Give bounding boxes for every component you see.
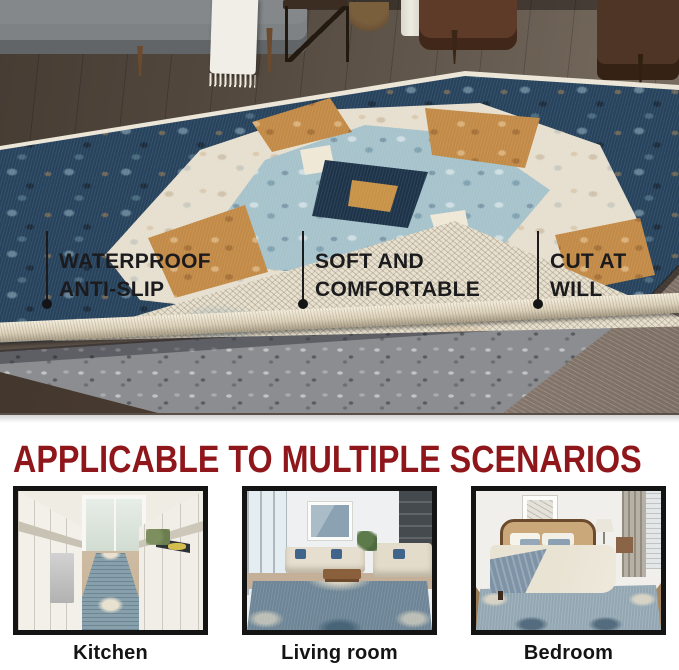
lamp-pole xyxy=(603,532,605,544)
gray-sofa xyxy=(0,0,307,54)
callout-label-line: SOFT AND xyxy=(315,248,480,276)
bed xyxy=(490,545,616,593)
callout-label: SOFT AND COMFORTABLE xyxy=(315,248,480,304)
kitchen-plant xyxy=(146,529,170,545)
kitchen-photo xyxy=(18,491,203,630)
scenario-label-bedroom: Bedroom xyxy=(471,642,666,665)
callout-line xyxy=(46,231,48,302)
throw-blanket xyxy=(210,0,259,75)
callout-label-line: ANTI-SLIP xyxy=(59,276,211,304)
leather-armchair xyxy=(419,0,517,50)
callout-label-line: WATERPROOF xyxy=(59,248,211,276)
side-table xyxy=(283,0,347,64)
scenario-label-kitchen: Kitchen xyxy=(13,642,208,665)
wall-art xyxy=(307,501,353,541)
callout-dot-marker xyxy=(42,299,52,309)
blue-pillow xyxy=(331,549,342,559)
throw-fringe xyxy=(209,73,255,88)
callout-label-line: COMFORTABLE xyxy=(315,276,480,304)
blue-pillow xyxy=(295,549,306,559)
kitchen-window xyxy=(82,495,146,559)
lamp xyxy=(594,519,614,532)
callout-label-line: WILL xyxy=(550,276,626,304)
bedroom-window xyxy=(646,491,661,569)
potted-plant xyxy=(357,531,377,551)
side-table-frame xyxy=(285,6,349,62)
coffee-table xyxy=(323,569,361,579)
nightstand xyxy=(616,537,633,553)
curtain xyxy=(622,491,646,577)
scenario-label-living-room: Living room xyxy=(242,642,437,665)
blue-pillow xyxy=(393,549,405,559)
kitchen-dishwasher xyxy=(50,553,74,603)
callout-label: WATERPROOF ANTI-SLIP xyxy=(59,248,211,304)
blue-duvet xyxy=(490,545,616,593)
callout-line xyxy=(537,231,539,302)
hero-photo: WATERPROOF ANTI-SLIP SOFT AND COMFORTABL… xyxy=(0,0,679,415)
bedroom-photo xyxy=(476,491,661,630)
corner-armchair xyxy=(597,0,679,80)
kitchen-fruit-bowl xyxy=(168,543,186,550)
callout-dot-marker xyxy=(533,299,543,309)
scenarios-heading: APPLICABLE TO MULTIPLE SCENARIOS xyxy=(13,441,642,479)
living-room-photo xyxy=(247,491,432,630)
rug-product-infographic: WATERPROOF ANTI-SLIP SOFT AND COMFORTABL… xyxy=(0,0,679,670)
callout-line xyxy=(302,231,304,302)
bedroom-thumbnail xyxy=(471,486,666,635)
living-room-thumbnail xyxy=(242,486,437,635)
wooden-bowl xyxy=(349,2,389,31)
wall-art-canvas xyxy=(311,505,349,537)
bed-leg xyxy=(498,591,503,600)
callout-dot-marker xyxy=(298,299,308,309)
callout-label-line: CUT AT xyxy=(550,248,626,276)
hero-bottom-fade xyxy=(0,415,679,423)
callout-label: CUT AT WILL xyxy=(550,248,626,304)
kitchen-thumbnail xyxy=(13,486,208,635)
kitchen-window-mullion xyxy=(114,499,116,555)
